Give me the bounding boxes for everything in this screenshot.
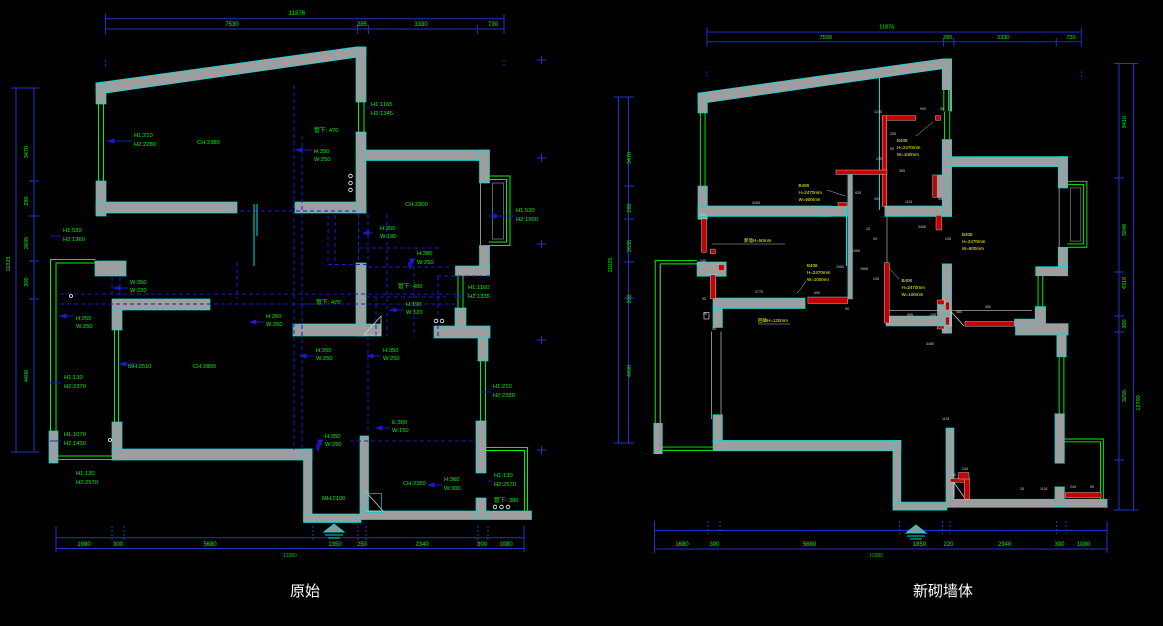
svg-text:H1:130: H1:130: [64, 375, 83, 381]
svg-text:55: 55: [1090, 485, 1094, 489]
svg-text:H2:2370: H2:2370: [64, 384, 86, 390]
svg-text:H1:1165: H1:1165: [371, 102, 393, 108]
svg-text:2635: 2635: [627, 240, 633, 252]
svg-text:3240: 3240: [1122, 224, 1128, 236]
svg-text:2635: 2635: [24, 237, 30, 249]
svg-text:H:360: H:360: [444, 477, 459, 483]
svg-text:2340: 2340: [998, 542, 1012, 548]
svg-text:5680: 5680: [803, 542, 817, 548]
svg-text:90: 90: [845, 307, 849, 311]
svg-text:H1:130: H1:130: [76, 471, 95, 477]
svg-text:W:250: W:250: [76, 324, 93, 330]
svg-text:B408: B408: [962, 232, 973, 237]
svg-text:300: 300: [1054, 542, 1065, 548]
svg-text:9410: 9410: [1122, 116, 1128, 128]
svg-text:E:350: E:350: [392, 420, 407, 426]
svg-text:B408: B408: [807, 263, 818, 268]
svg-text:835: 835: [855, 191, 861, 195]
svg-text:H=2470mm: H=2470mm: [902, 285, 926, 290]
svg-text:管下: 470: 管下: 470: [314, 126, 339, 134]
svg-text:300: 300: [709, 542, 720, 548]
svg-text:H:350: H:350: [314, 149, 329, 155]
svg-text:W=100mm: W=100mm: [902, 292, 924, 297]
svg-text:W:250: W:250: [417, 260, 434, 266]
svg-text:355: 355: [899, 169, 905, 173]
svg-text:1850: 1850: [913, 542, 927, 548]
svg-text:H2:1345: H2:1345: [371, 111, 393, 117]
svg-text:900: 900: [920, 107, 926, 111]
svg-text:3455: 3455: [926, 342, 934, 346]
svg-text:H:350: H:350: [266, 314, 281, 320]
svg-text:W:180: W:180: [380, 234, 397, 240]
svg-text:5680: 5680: [203, 542, 217, 548]
svg-text:245: 245: [876, 157, 882, 161]
svg-text:250: 250: [357, 542, 368, 548]
svg-text:新砌墙体: 新砌墙体: [913, 583, 973, 600]
svg-text:55: 55: [940, 107, 944, 111]
svg-text:H:250: H:250: [76, 316, 91, 322]
svg-text:H1:130: H1:130: [494, 473, 513, 479]
svg-text:1101: 1101: [905, 200, 913, 204]
svg-text:CH:2900: CH:2900: [405, 202, 428, 208]
svg-text:3470: 3470: [24, 146, 30, 158]
svg-text:300: 300: [477, 542, 488, 548]
svg-text:245: 245: [873, 277, 879, 281]
svg-text:H2:1960: H2:1960: [63, 237, 85, 243]
svg-text:H1:1070: H1:1070: [64, 432, 86, 438]
svg-text:11025: 11025: [608, 258, 614, 273]
svg-text:W:250: W:250: [325, 442, 342, 448]
svg-text:55: 55: [938, 197, 942, 201]
svg-text:55: 55: [952, 473, 956, 477]
svg-text:H:350: H:350: [325, 434, 340, 440]
svg-text:3470: 3470: [627, 152, 633, 164]
svg-text:300: 300: [24, 277, 30, 286]
svg-text:MH:2510: MH:2510: [128, 364, 152, 370]
svg-text:H2:2570: H2:2570: [494, 482, 516, 488]
svg-text:245: 245: [930, 313, 936, 317]
svg-text:245: 245: [1070, 485, 1076, 489]
svg-text:B408: B408: [897, 138, 908, 143]
svg-text:H:350: H:350: [316, 348, 331, 354]
svg-text:3455: 3455: [918, 225, 926, 229]
svg-text:H1:210: H1:210: [134, 133, 153, 139]
svg-text:55: 55: [890, 147, 894, 151]
svg-text:B408: B408: [902, 278, 913, 283]
svg-text:H1:530: H1:530: [516, 208, 535, 214]
svg-text:H:350: H:350: [380, 226, 395, 232]
svg-text:H2:1430: H2:1430: [64, 441, 86, 447]
svg-text:H=2470mm: H=2470mm: [799, 190, 823, 195]
svg-text:1080: 1080: [499, 542, 513, 548]
svg-text:W:250: W:250: [383, 356, 400, 362]
svg-text:930: 930: [874, 197, 880, 201]
svg-text:管下: 400: 管下: 400: [398, 282, 423, 290]
svg-text:W:250: W:250: [266, 322, 283, 328]
svg-text:4400: 4400: [24, 370, 30, 382]
svg-text:245: 245: [962, 467, 968, 471]
svg-text:H=2470mm: H=2470mm: [807, 270, 831, 275]
svg-text:11025: 11025: [6, 257, 12, 272]
svg-text:管下: 470: 管下: 470: [316, 298, 341, 306]
svg-text:W=900mm: W=900mm: [962, 246, 984, 251]
svg-text:W:150: W:150: [392, 428, 409, 434]
svg-text:650: 650: [814, 291, 820, 295]
svg-text:CH:2350: CH:2350: [403, 481, 426, 487]
svg-text:MH:2100: MH:2100: [322, 496, 346, 502]
svg-text:W:250: W:250: [316, 356, 333, 362]
svg-text:H2:2280: H2:2280: [493, 393, 515, 399]
svg-text:CH:2800: CH:2800: [193, 364, 216, 370]
svg-text:H1:530: H1:530: [63, 228, 82, 234]
svg-text:W:300: W:300: [444, 486, 461, 492]
svg-text:300: 300: [113, 542, 124, 548]
svg-text:H2:1335: H2:1335: [468, 294, 490, 300]
svg-text:25: 25: [1020, 487, 1024, 491]
svg-text:H=2470mm: H=2470mm: [897, 145, 921, 150]
svg-text:1101: 1101: [942, 417, 950, 421]
svg-text:220: 220: [943, 542, 954, 548]
svg-text:280: 280: [24, 196, 30, 205]
svg-text:55: 55: [712, 327, 716, 331]
svg-text:W=100mm: W=100mm: [807, 277, 829, 282]
svg-text:H=2470mm: H=2470mm: [962, 239, 986, 244]
svg-text:12700: 12700: [1136, 395, 1142, 410]
svg-text:555: 555: [907, 313, 913, 317]
svg-text:1245: 1245: [874, 110, 882, 114]
svg-text:H2:2570: H2:2570: [76, 480, 98, 486]
svg-text:1080: 1080: [1077, 542, 1091, 548]
svg-text:管下: 380: 管下: 380: [494, 496, 519, 504]
svg-text:H:190: H:190: [406, 302, 421, 308]
svg-text:280: 280: [627, 203, 633, 212]
svg-text:12980: 12980: [283, 553, 297, 559]
svg-text:12980: 12980: [869, 553, 883, 559]
svg-text:H2:2280: H2:2280: [134, 142, 156, 148]
svg-text:4400: 4400: [627, 365, 633, 377]
svg-text:245: 245: [890, 132, 896, 136]
svg-text:1060: 1060: [852, 249, 860, 253]
svg-text:1101: 1101: [1040, 487, 1048, 491]
svg-text:25: 25: [866, 227, 870, 231]
svg-text:480: 480: [956, 310, 962, 314]
svg-text:W:220: W:220: [130, 288, 147, 294]
svg-text:H2:1900: H2:1900: [516, 217, 538, 223]
svg-text:W=100mm: W=100mm: [897, 152, 919, 157]
svg-text:90: 90: [702, 297, 706, 301]
svg-text:W:120: W:120: [406, 310, 423, 316]
svg-text:245: 245: [945, 237, 951, 241]
svg-text:H1:1160: H1:1160: [468, 285, 490, 291]
svg-text:1565: 1565: [860, 267, 868, 271]
svg-text:2770: 2770: [755, 290, 763, 294]
svg-text:原始: 原始: [290, 583, 320, 600]
svg-text:1050: 1050: [836, 265, 844, 269]
svg-text:回填H=120mm: 回填H=120mm: [758, 317, 788, 324]
svg-text:H1:210: H1:210: [493, 384, 512, 390]
svg-text:H:380: H:380: [417, 251, 432, 257]
svg-text:245: 245: [700, 259, 706, 263]
svg-text:1980: 1980: [77, 542, 91, 548]
svg-text:4265: 4265: [752, 201, 760, 205]
svg-text:3255: 3255: [1122, 390, 1128, 402]
svg-text:300: 300: [1122, 319, 1128, 328]
svg-text:1680: 1680: [675, 542, 689, 548]
svg-text:25: 25: [703, 312, 707, 316]
svg-text:W:250: W:250: [314, 157, 331, 163]
svg-text:300: 300: [627, 294, 633, 303]
svg-text:1350: 1350: [328, 542, 342, 548]
svg-text:H:350: H:350: [383, 348, 398, 354]
svg-text:CH:2380: CH:2380: [197, 140, 220, 146]
svg-text:350: 350: [985, 305, 991, 309]
svg-text:55: 55: [873, 237, 877, 241]
svg-text:435: 435: [700, 213, 706, 217]
svg-text:W=900mm: W=900mm: [799, 197, 821, 202]
svg-text:2340: 2340: [415, 542, 429, 548]
svg-text:B408: B408: [799, 183, 810, 188]
svg-text:W:350: W:350: [130, 280, 147, 286]
svg-text:新墙H=50mm: 新墙H=50mm: [744, 237, 772, 244]
svg-text:4310: 4310: [1122, 277, 1128, 289]
